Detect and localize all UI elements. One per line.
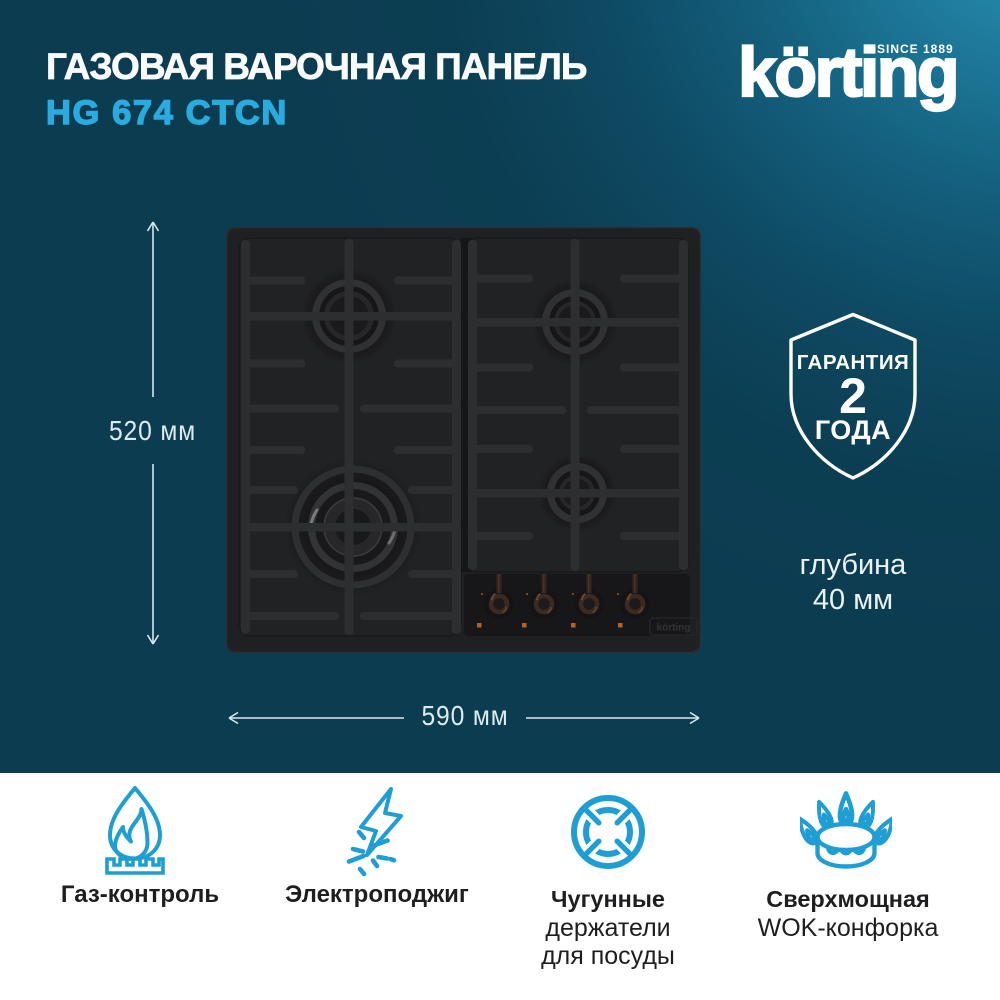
svg-text:ГОДА: ГОДА	[815, 415, 891, 445]
svg-text:körting: körting	[657, 623, 691, 634]
